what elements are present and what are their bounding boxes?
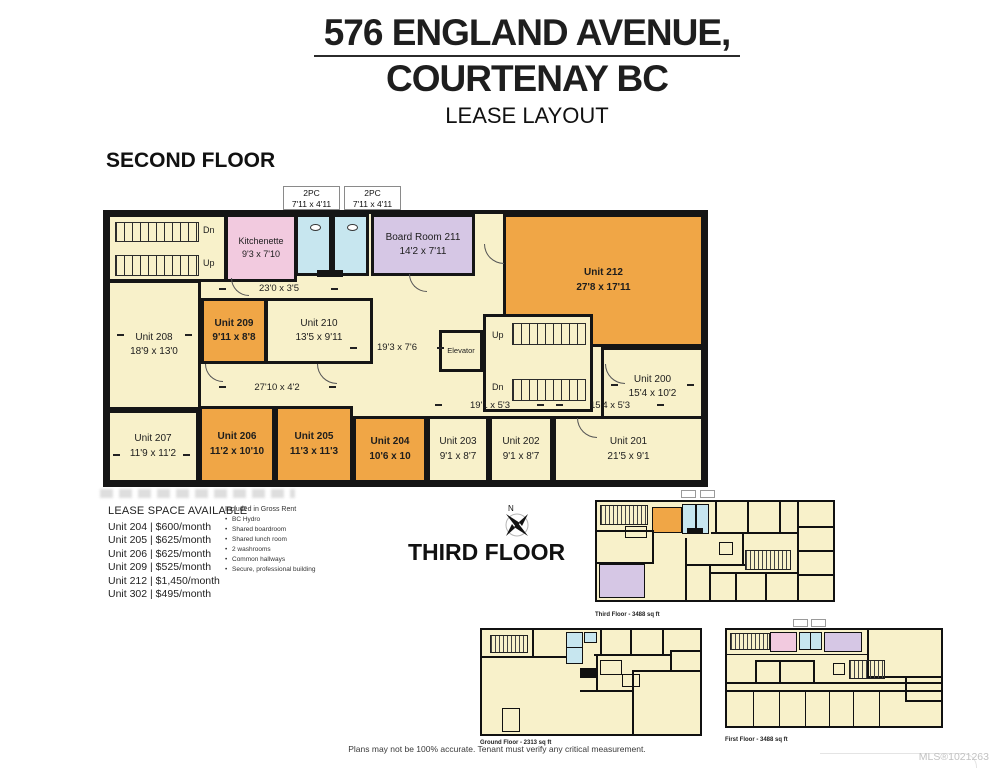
wall [709, 572, 797, 574]
disclaimer-text: Plans may not be 100% accurate. Tenant m… [0, 744, 994, 754]
wall [810, 632, 811, 650]
wall [662, 630, 664, 654]
stair-treads [115, 222, 199, 242]
wall [711, 532, 797, 534]
corridor-dim: 15'4 x 5'3 [565, 400, 655, 411]
stair-up-label: Up [203, 257, 215, 270]
wall [600, 630, 602, 654]
mini-board-room [824, 632, 862, 652]
room-label: Unit 206 [218, 430, 257, 445]
room-unit-200: Unit 200 15'4 x 10'2 [601, 347, 704, 427]
title-block: 576 ENGLAND AVENUE, COURTENAY BC LEASE L… [60, 12, 994, 129]
room-dims: 9'1 x 8'7 [503, 450, 540, 465]
door-arc [317, 364, 337, 384]
wall [727, 682, 941, 684]
dimension-tick [219, 288, 226, 290]
dimension-tick [329, 386, 336, 388]
room-label: Unit 200 [634, 373, 671, 388]
callout-2pc-right: 2PC 7'11 x 4'11 [344, 186, 401, 210]
stair-up-label: Up [492, 329, 504, 342]
dimension-tick [657, 404, 664, 406]
wall [779, 690, 780, 728]
room-unit-205: Unit 205 11'3 x 11'3 [275, 406, 353, 483]
lease-item: Unit 212 | $1,450/month [108, 575, 308, 588]
room-dims: 9'3 x 7'10 [242, 248, 280, 261]
mini-elevator-core [580, 668, 596, 678]
included-item: Shared boardroom [225, 525, 335, 535]
mini-room [600, 660, 622, 675]
wall [566, 647, 583, 648]
callout-line1: 2PC [284, 188, 339, 199]
dimension-tick [437, 347, 444, 349]
room-dims: 21'5 x 9'1 [607, 450, 649, 465]
dimension-tick [183, 454, 190, 456]
wall [805, 690, 806, 728]
wall [670, 650, 672, 670]
mini-stairs [490, 635, 528, 653]
door-arc [205, 364, 223, 382]
mini-board-room [599, 564, 645, 598]
dimension-tick [117, 334, 124, 336]
room-label: Unit 204 [371, 435, 410, 450]
room-dims: 9'1 x 8'7 [440, 450, 477, 465]
dimension-tick [350, 347, 357, 349]
room-label: Unit 210 [300, 317, 337, 332]
wall [742, 532, 744, 564]
wall [594, 654, 670, 656]
compass-north-label: N [508, 504, 514, 513]
included-item: Shared lunch room [225, 535, 335, 545]
address-line-1: 576 ENGLAND AVENUE, [60, 12, 994, 57]
room-label: Unit 208 [135, 331, 172, 346]
corridor-dim: 19'1 x 5'3 [445, 400, 535, 411]
mini-washroom [584, 632, 597, 643]
dimension-tick [537, 404, 544, 406]
wall [755, 660, 813, 662]
room-unit-206: Unit 206 11'2 x 10'10 [199, 406, 275, 483]
mini-elevator [719, 542, 733, 555]
wall [779, 660, 781, 682]
wall [797, 550, 833, 552]
door-arc [484, 244, 504, 264]
wall [687, 528, 703, 534]
room-unit-203: Unit 203 9'1 x 8'7 [427, 416, 489, 483]
door-arc [409, 274, 427, 292]
second-floor-plan: Dn Up Kitchenette 9'3 x 7'10 Board Room … [103, 210, 708, 487]
dimension-tick [331, 288, 338, 290]
room-unit-210: Unit 210 13'5 x 9'11 [265, 298, 373, 364]
room-dims: 13'5 x 9'11 [295, 331, 342, 346]
included-item: 2 washrooms [225, 545, 335, 555]
mini-room [625, 526, 647, 538]
room-label: Unit 205 [295, 430, 334, 445]
room-unit-204: Unit 204 10'6 x 10 [353, 416, 427, 483]
room-label: Unit 202 [502, 435, 539, 450]
wall [727, 654, 867, 655]
wall [709, 564, 711, 600]
room-unit-202: Unit 202 9'1 x 8'7 [489, 416, 553, 483]
wall [905, 700, 941, 702]
mini-stairs [849, 660, 885, 679]
third-floor-heading: THIRD FLOOR [408, 539, 565, 566]
stairwell-top-left: Dn Up [107, 214, 227, 282]
dimension-tick [556, 404, 563, 406]
mls-watermark: MLS®1021263 [919, 751, 989, 763]
dimension-tick [185, 334, 192, 336]
mini-stairs [745, 550, 791, 570]
wall [747, 502, 749, 532]
first-floor-thumbnail [725, 628, 943, 728]
room-washroom-2 [332, 214, 369, 276]
door-threshold [317, 270, 343, 277]
wall [685, 564, 745, 566]
room-label: Unit 201 [610, 435, 647, 450]
room-elevator: Elevator [439, 330, 483, 372]
wall [597, 530, 652, 532]
wall [765, 572, 767, 600]
mini-callout [681, 490, 696, 498]
room-label: Unit 209 [215, 317, 254, 332]
mini-room [622, 674, 640, 687]
third-floor-caption: Third Floor - 3488 sq ft [595, 612, 660, 618]
room-unit-207: Unit 207 11'9 x 11'2 [107, 410, 199, 483]
room-unit-201: Unit 201 21'5 x 9'1 [553, 416, 704, 483]
room-kitchenette: Kitchenette 9'3 x 7'10 [225, 214, 297, 282]
wall [797, 526, 833, 528]
wall [580, 690, 632, 692]
room-label: Unit 212 [584, 266, 623, 281]
mini-callout [700, 490, 715, 498]
wall [753, 690, 754, 728]
room-dims: 11'3 x 11'3 [290, 445, 338, 460]
included-in-rent-list: Included in Gross Rent BC Hydro Shared b… [225, 506, 335, 575]
mini-kitchenette [770, 632, 797, 652]
room-dims: 27'8 x 17'11 [576, 281, 630, 296]
dimension-tick [113, 454, 120, 456]
callout-2pc-left: 2PC 7'11 x 4'11 [283, 186, 340, 210]
stairwell-middle: Up Dn [483, 314, 593, 412]
callout-line1: 2PC [345, 188, 400, 199]
mini-unit-302 [652, 507, 682, 533]
address-line-2: COURTENAY BC [60, 58, 994, 100]
mini-entry [502, 708, 520, 732]
wall [853, 690, 854, 728]
room-dims: 9'11 x 8'8 [212, 331, 255, 346]
mini-stairs [730, 633, 770, 650]
mini-washrooms [566, 632, 583, 664]
room-unit-209: Unit 209 9'11 x 8'8 [201, 298, 267, 364]
wall [727, 690, 941, 692]
mini-callout [793, 619, 808, 627]
room-dims: 11'9 x 11'2 [130, 447, 176, 462]
dimension-tick [219, 386, 226, 388]
dimension-tick [687, 384, 694, 386]
included-heading: Included in Gross Rent [225, 506, 335, 513]
compass-icon: N [495, 501, 537, 543]
mini-elevator [833, 663, 845, 675]
dimension-tick [611, 384, 618, 386]
wall [715, 502, 717, 532]
callout-line2: 7'11 x 4'11 [345, 199, 400, 210]
wall [905, 676, 907, 702]
wall [652, 530, 654, 564]
included-item: BC Hydro [225, 515, 335, 525]
stair-treads [512, 323, 586, 345]
included-item: Secure, professional building [225, 565, 335, 575]
wall [755, 660, 757, 682]
blurred-caption [100, 489, 295, 498]
corridor-dim: 19'3 x 7'6 [359, 342, 435, 353]
wall [879, 690, 880, 728]
stair-treads [115, 255, 199, 276]
room-dims: 11'2 x 10'10 [210, 445, 264, 460]
wall [797, 574, 833, 576]
room-label: Unit 207 [134, 432, 171, 447]
wall [829, 690, 830, 728]
first-floor-caption: First Floor - 3488 sq ft [725, 737, 788, 743]
wall [630, 630, 632, 654]
third-floor-thumbnail [595, 500, 835, 602]
wall [779, 502, 781, 534]
mini-stairs [600, 505, 648, 525]
toilet-icon [347, 224, 358, 231]
wall [735, 572, 737, 600]
stair-dn-label: Dn [203, 224, 215, 237]
room-label: Board Room 211 [386, 231, 461, 246]
room-dims: 10'6 x 10 [369, 450, 410, 465]
mini-callout [811, 619, 826, 627]
wall [632, 670, 700, 672]
corridor-dim: 27'10 x 4'2 [229, 382, 325, 393]
subtitle: LEASE LAYOUT [60, 103, 994, 129]
ground-floor-thumbnail [480, 628, 702, 736]
stair-dn-label: Dn [492, 381, 504, 394]
callout-line2: 7'11 x 4'11 [284, 199, 339, 210]
wall [632, 670, 634, 734]
room-board-room-211: Board Room 211 14'2 x 7'11 [371, 214, 475, 276]
wall [482, 656, 570, 658]
lease-item: Unit 302 | $495/month [108, 588, 308, 601]
wall [685, 538, 687, 600]
wall [532, 630, 534, 656]
room-dims: 18'9 x 13'0 [130, 345, 178, 360]
room-dims: 14'2 x 7'11 [399, 245, 446, 260]
dimension-tick [435, 404, 442, 406]
wall [670, 650, 700, 652]
room-label: Kitchenette [238, 235, 283, 248]
room-washroom-1 [295, 214, 332, 276]
wall [813, 660, 815, 682]
room-label: Unit 203 [439, 435, 476, 450]
second-floor-heading: SECOND FLOOR [106, 149, 275, 173]
address-text: 576 ENGLAND AVENUE, [314, 12, 741, 57]
toilet-icon [310, 224, 321, 231]
room-unit-208: Unit 208 18'9 x 13'0 [107, 280, 201, 410]
wall [596, 656, 598, 692]
stair-treads [512, 379, 586, 401]
elevator-label: Elevator [447, 346, 475, 357]
included-item: Common hallways [225, 555, 335, 565]
